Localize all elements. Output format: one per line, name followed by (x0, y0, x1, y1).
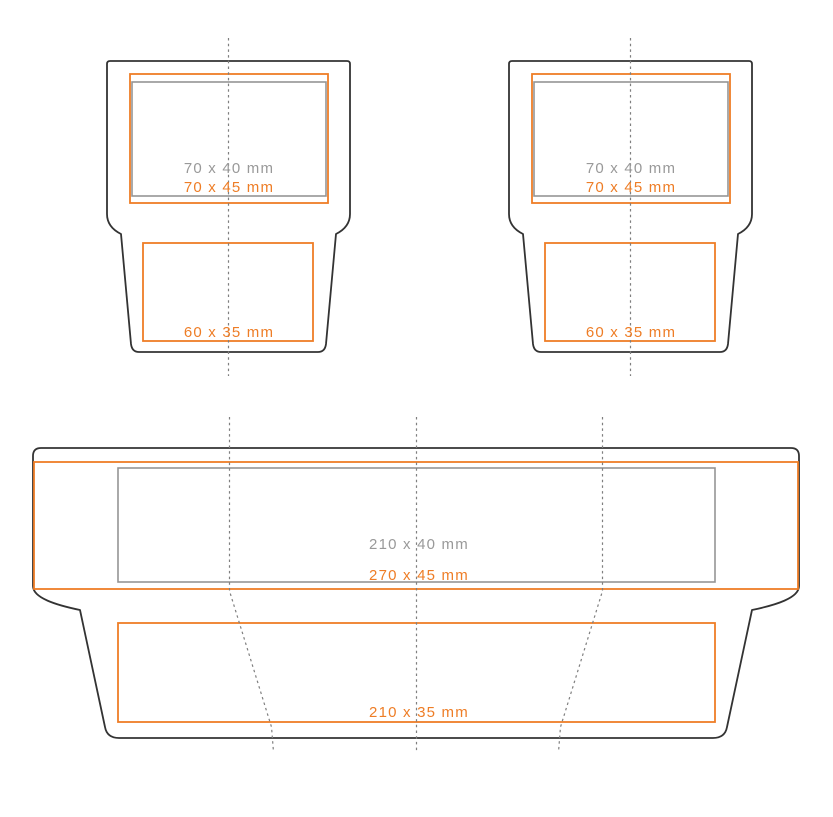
print-area-label: 210 x 40 mm (369, 536, 469, 553)
bottom-area-label: 60 x 35 mm (184, 324, 274, 341)
dieline-svg: 70 x 40 mm 70 x 45 mm 60 x 35 mm 70 x 40… (0, 0, 833, 817)
bottom-area-label: 60 x 35 mm (586, 324, 676, 341)
bleed-area-label: 70 x 45 mm (586, 179, 676, 196)
print-area-label: 70 x 40 mm (184, 160, 274, 177)
sleeve-template-small-right: 70 x 40 mm 70 x 45 mm 60 x 35 mm (509, 38, 752, 376)
sleeve-template-small-left: 70 x 40 mm 70 x 45 mm 60 x 35 mm (107, 38, 350, 376)
bottom-area-label: 210 x 35 mm (369, 704, 469, 721)
print-area-label: 70 x 40 mm (586, 160, 676, 177)
dieline-diagram: 70 x 40 mm 70 x 45 mm 60 x 35 mm 70 x 40… (0, 0, 833, 817)
sleeve-template-large: 210 x 40 mm 270 x 45 mm 210 x 35 mm (33, 417, 799, 752)
bleed-area-label: 70 x 45 mm (184, 179, 274, 196)
bleed-area-label: 270 x 45 mm (369, 567, 469, 584)
